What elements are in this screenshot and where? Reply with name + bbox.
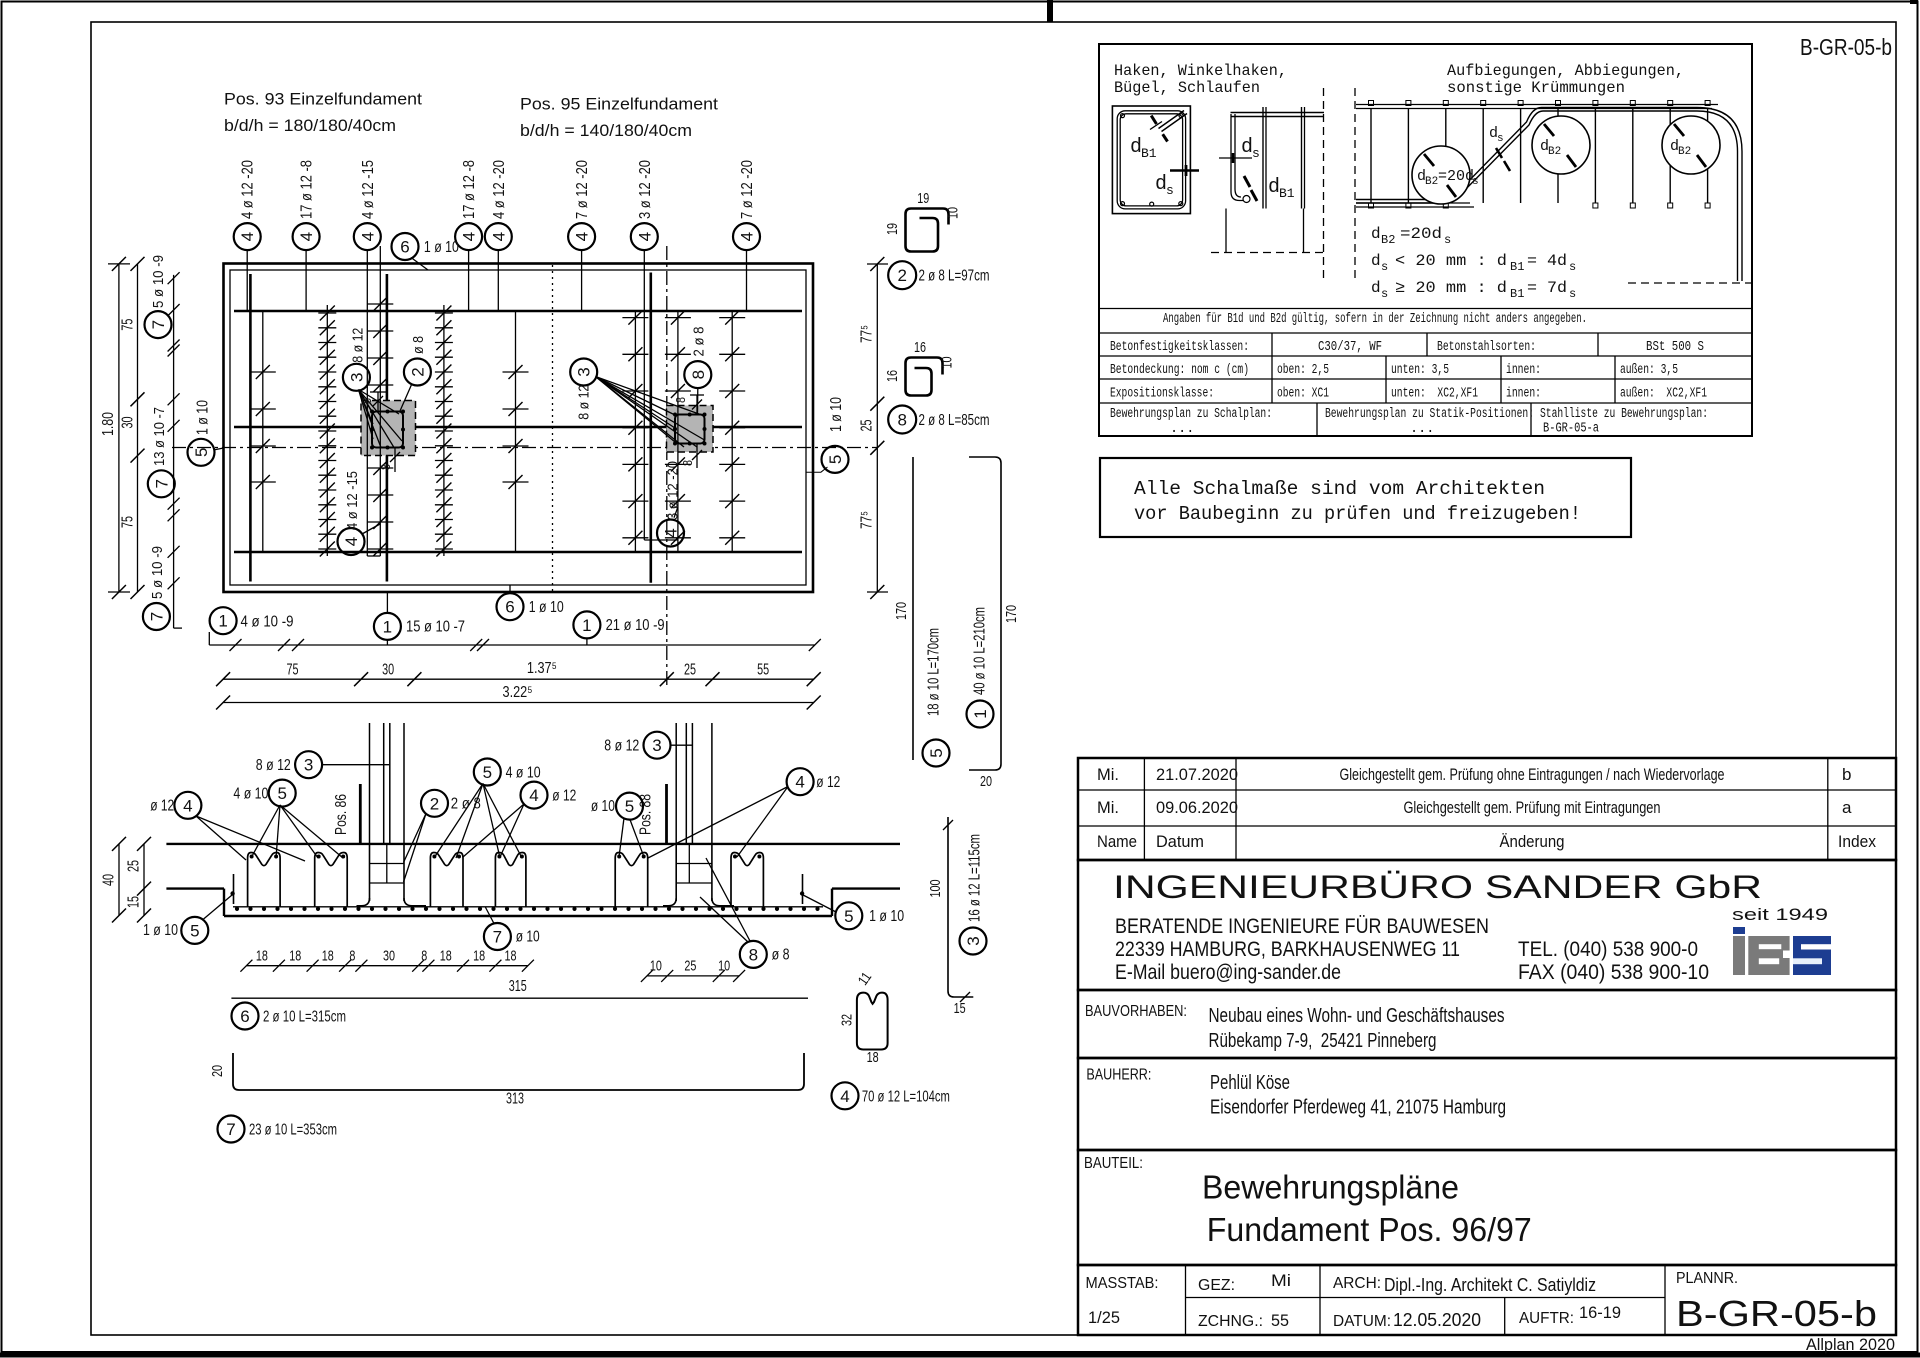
svg-text:40 ø 10 L=210cm: 40 ø 10 L=210cm xyxy=(972,607,989,695)
svg-text:Gleichgestellt gem. Prüfung oh: Gleichgestellt gem. Prüfung ohne Eintrag… xyxy=(1340,765,1725,784)
svg-text:23 ø 10 L=353cm: 23 ø 10 L=353cm xyxy=(249,1122,337,1139)
svg-text:Name: Name xyxy=(1097,832,1137,851)
svg-text:ø 12: ø 12 xyxy=(552,788,576,805)
svg-text:...: ... xyxy=(1410,422,1434,437)
svg-text:s: s xyxy=(1381,260,1388,274)
svg-text:seit 1949: seit 1949 xyxy=(1732,905,1828,924)
svg-text:4: 4 xyxy=(183,796,192,815)
svg-text:d: d xyxy=(1371,279,1381,297)
svg-text:B-GR-05-b: B-GR-05-b xyxy=(1800,34,1892,60)
svg-text:55: 55 xyxy=(1271,1311,1289,1330)
svg-text:unten: XC2,XF1: unten: XC2,XF1 xyxy=(1391,387,1478,402)
svg-text:4 ø 10: 4 ø 10 xyxy=(233,786,268,803)
svg-text:8 ø 12: 8 ø 12 xyxy=(576,385,593,420)
svg-text:8: 8 xyxy=(897,411,906,430)
svg-text:Index: Index xyxy=(1838,832,1876,851)
svg-text:4 ø 12 -15: 4 ø 12 -15 xyxy=(360,160,377,219)
svg-text:DATUM:: DATUM: xyxy=(1333,1313,1391,1330)
svg-text:170: 170 xyxy=(1003,605,1020,623)
svg-text:ARCH:: ARCH: xyxy=(1333,1275,1381,1292)
svg-text:4 ø 10 -9: 4 ø 10 -9 xyxy=(241,614,294,631)
svg-text:7 ø 12 -20: 7 ø 12 -20 xyxy=(739,160,756,219)
svg-text:40: 40 xyxy=(101,874,118,886)
svg-text:10: 10 xyxy=(718,958,730,975)
svg-text:Mi: Mi xyxy=(1271,1271,1291,1290)
svg-text:Änderung: Änderung xyxy=(1500,832,1565,851)
svg-text:≥ 20 mm : d: ≥ 20 mm : d xyxy=(1395,279,1507,297)
svg-text:5: 5 xyxy=(826,455,845,464)
svg-text:Gleichgestellt gem. Prüfung mi: Gleichgestellt gem. Prüfung mit Eintragu… xyxy=(1404,798,1661,817)
svg-text:1.80: 1.80 xyxy=(100,412,117,436)
svg-text:5: 5 xyxy=(192,448,211,457)
svg-text:1: 1 xyxy=(971,709,990,718)
svg-text:16: 16 xyxy=(914,339,926,356)
svg-text:BSt 500 S: BSt 500 S xyxy=(1646,340,1704,355)
svg-text:3 ø 12 -20: 3 ø 12 -20 xyxy=(637,160,654,219)
svg-text:1: 1 xyxy=(383,617,392,636)
svg-text:10: 10 xyxy=(650,958,662,975)
svg-text:Bügel, Schlaufen: Bügel, Schlaufen xyxy=(1114,79,1260,97)
svg-text:4: 4 xyxy=(342,537,361,546)
svg-text:315: 315 xyxy=(509,978,527,995)
svg-text:2 ø 8: 2 ø 8 xyxy=(451,796,481,813)
svg-text:3: 3 xyxy=(575,367,594,376)
svg-text:2: 2 xyxy=(408,367,427,376)
svg-text:B1: B1 xyxy=(1141,146,1157,161)
svg-text:5 ø 10 -9: 5 ø 10 -9 xyxy=(149,546,166,599)
svg-text:4 ø 12 -20: 4 ø 12 -20 xyxy=(491,160,508,219)
svg-text:5: 5 xyxy=(927,748,946,757)
svg-text:32: 32 xyxy=(839,1014,856,1026)
svg-text:s: s xyxy=(1569,260,1576,274)
svg-text:Haken, Winkelhaken,: Haken, Winkelhaken, xyxy=(1114,62,1287,80)
svg-text:8: 8 xyxy=(349,948,355,965)
svg-text:vor Baubeginn zu prüfen und fr: vor Baubeginn zu prüfen und freizugeben! xyxy=(1134,503,1581,525)
svg-text:B2: B2 xyxy=(1425,176,1438,188)
svg-text:25: 25 xyxy=(684,661,696,678)
svg-text:6: 6 xyxy=(400,238,409,257)
svg-text:19: 19 xyxy=(917,190,929,207)
svg-text:= 4d: = 4d xyxy=(1527,252,1567,270)
svg-text:ø 12: ø 12 xyxy=(816,774,840,791)
svg-text:8: 8 xyxy=(673,397,688,403)
svg-text:4: 4 xyxy=(635,232,654,241)
svg-text:8 ø 12: 8 ø 12 xyxy=(349,328,366,363)
svg-text:75: 75 xyxy=(120,516,137,528)
svg-text:70 ø 12 L=104cm: 70 ø 12 L=104cm xyxy=(862,1088,950,1105)
svg-text:18: 18 xyxy=(473,948,485,965)
svg-text:5: 5 xyxy=(844,907,853,926)
svg-text:1 ø 10: 1 ø 10 xyxy=(195,400,212,435)
svg-text:Neubau eines Wohn- und Geschäf: Neubau eines Wohn- und Geschäftshauses xyxy=(1209,1005,1505,1027)
svg-text:16 ø 12 L=115cm: 16 ø 12 L=115cm xyxy=(967,834,984,922)
svg-text:1 ø 10: 1 ø 10 xyxy=(828,397,845,432)
svg-text:Datum: Datum xyxy=(1156,832,1204,851)
svg-text:s: s xyxy=(1381,287,1388,301)
svg-text:77⁵: 77⁵ xyxy=(859,511,876,529)
svg-text:Pos. 86: Pos. 86 xyxy=(333,794,350,835)
svg-text:B-GR-05-a: B-GR-05-a xyxy=(1543,422,1599,437)
svg-text:=20d: =20d xyxy=(1400,225,1442,243)
svg-text:1: 1 xyxy=(582,616,591,635)
svg-text:1 ø 10: 1 ø 10 xyxy=(424,239,459,256)
svg-text:5: 5 xyxy=(190,921,199,940)
svg-text:1 ø 10: 1 ø 10 xyxy=(869,908,904,925)
svg-text:d: d xyxy=(1371,225,1381,243)
svg-text:b: b xyxy=(1842,765,1851,784)
svg-text:oben: XC1: oben: XC1 xyxy=(1277,387,1329,402)
svg-text:ø 12: ø 12 xyxy=(150,798,174,815)
svg-text:3: 3 xyxy=(304,756,313,775)
svg-text:sonstige Krümmungen: sonstige Krümmungen xyxy=(1447,79,1625,97)
svg-text:3: 3 xyxy=(347,373,366,382)
svg-text:4: 4 xyxy=(573,232,592,241)
svg-text:ø 10: ø 10 xyxy=(516,929,540,946)
svg-text:7: 7 xyxy=(152,479,171,488)
svg-text:Allplan 2020: Allplan 2020 xyxy=(1806,1335,1895,1354)
svg-text:BAUVORHABEN:: BAUVORHABEN: xyxy=(1085,1003,1187,1020)
svg-text:20: 20 xyxy=(980,773,992,790)
svg-text:Betondeckung: nom c (cm): Betondeckung: nom c (cm) xyxy=(1110,363,1249,378)
svg-text:2 ø 8 L=85cm: 2 ø 8 L=85cm xyxy=(919,412,990,429)
svg-text:4: 4 xyxy=(460,232,479,241)
svg-text:4 ø 12 -20: 4 ø 12 -20 xyxy=(240,160,257,219)
svg-text:Mi.: Mi. xyxy=(1097,765,1119,784)
svg-text:25: 25 xyxy=(859,419,876,431)
svg-text:18: 18 xyxy=(505,948,517,965)
svg-text:Bewehrungsplan zu Statik-Posit: Bewehrungsplan zu Statik-Positionen: xyxy=(1325,407,1534,422)
svg-text:16: 16 xyxy=(884,370,901,382)
svg-text:PLANNR.: PLANNR. xyxy=(1676,1270,1738,1287)
svg-text:16-19: 16-19 xyxy=(1579,1303,1621,1322)
svg-text:1 ø 10: 1 ø 10 xyxy=(143,922,178,939)
svg-text:oben: 2,5: oben: 2,5 xyxy=(1277,363,1329,378)
svg-text:15: 15 xyxy=(126,896,143,908)
svg-text:4: 4 xyxy=(840,1087,849,1106)
svg-text:4: 4 xyxy=(358,232,377,241)
svg-text:4: 4 xyxy=(489,232,508,241)
svg-text:4 ø 12 -15: 4 ø 12 -15 xyxy=(344,471,361,530)
svg-text:30: 30 xyxy=(383,948,395,965)
svg-text:BAUHERR:: BAUHERR: xyxy=(1086,1067,1151,1084)
svg-text:= 7d: = 7d xyxy=(1527,279,1567,297)
svg-text:17 ø 12 -8: 17 ø 12 -8 xyxy=(461,160,478,219)
svg-text:7: 7 xyxy=(226,1120,235,1139)
svg-text:Dipl.-Ing. Architekt C. Satiyl: Dipl.-Ing. Architekt C. Satiyldiz xyxy=(1384,1275,1596,1295)
svg-text:a: a xyxy=(1842,798,1852,817)
svg-text:Aufbiegungen, Abbiegungen,: Aufbiegungen, Abbiegungen, xyxy=(1447,62,1684,80)
svg-text:innen:: innen: xyxy=(1506,387,1541,402)
svg-text:18: 18 xyxy=(867,1049,879,1066)
svg-text:2: 2 xyxy=(430,794,439,813)
svg-text:170: 170 xyxy=(893,602,910,620)
svg-text:Pos. 95 Einzelfundament: Pos. 95 Einzelfundament xyxy=(520,95,718,114)
svg-text:75: 75 xyxy=(287,661,299,678)
svg-text:4 ø 10: 4 ø 10 xyxy=(506,765,541,782)
svg-text:55: 55 xyxy=(757,661,769,678)
svg-text:innen:: innen: xyxy=(1506,363,1541,378)
svg-text:19: 19 xyxy=(884,223,901,235)
svg-text:d: d xyxy=(1371,252,1381,270)
svg-text:10: 10 xyxy=(939,357,956,369)
svg-text:2 ø 8: 2 ø 8 xyxy=(691,327,708,357)
svg-text:5 ø 10 -9: 5 ø 10 -9 xyxy=(150,255,167,308)
svg-text:ø 8: ø 8 xyxy=(772,947,790,964)
svg-text:22339 HAMBURG, BARKHAUSENWEG 1: 22339 HAMBURG, BARKHAUSENWEG 11 xyxy=(1115,938,1460,961)
svg-text:4: 4 xyxy=(297,232,316,241)
svg-text:15: 15 xyxy=(954,1000,966,1017)
svg-text:TEL. (040) 538 900-0: TEL. (040) 538 900-0 xyxy=(1518,938,1698,961)
svg-text:18: 18 xyxy=(289,948,301,965)
svg-text:=20d: =20d xyxy=(1438,168,1474,185)
svg-text:ø 8: ø 8 xyxy=(410,336,427,354)
svg-text:7: 7 xyxy=(493,928,502,947)
svg-text:8 ø 12: 8 ø 12 xyxy=(604,738,639,755)
svg-text:7: 7 xyxy=(149,320,168,329)
svg-text:12.05.2020: 12.05.2020 xyxy=(1393,1310,1481,1330)
svg-text:MASSTAB:: MASSTAB: xyxy=(1086,1275,1159,1292)
svg-text:6: 6 xyxy=(505,598,514,617)
svg-text:5: 5 xyxy=(277,784,286,803)
svg-text:1/25: 1/25 xyxy=(1088,1308,1120,1327)
svg-text:...: ... xyxy=(1170,422,1194,437)
svg-text:B1: B1 xyxy=(1279,186,1295,201)
svg-text:8: 8 xyxy=(749,945,758,964)
svg-text:3: 3 xyxy=(964,936,983,945)
svg-text:15 ø 10 -7: 15 ø 10 -7 xyxy=(406,619,465,636)
svg-text:B2: B2 xyxy=(1678,146,1691,158)
svg-text:B-GR-05-b: B-GR-05-b xyxy=(1676,1293,1877,1334)
svg-text:Eisendorfer Pferdeweg 41, 2107: Eisendorfer Pferdeweg 41, 21075 Hamburg xyxy=(1210,1097,1506,1119)
svg-text:Alle Schalmaße sind vom Archit: Alle Schalmaße sind vom Architekten xyxy=(1134,478,1545,500)
svg-text:Betonstahlsorten:: Betonstahlsorten: xyxy=(1437,340,1536,355)
svg-text:AUFTR:: AUFTR: xyxy=(1519,1310,1574,1327)
svg-text:GEZ:: GEZ: xyxy=(1198,1277,1235,1294)
svg-text:B2: B2 xyxy=(1548,146,1561,158)
svg-text:FAX (040) 538 900-10: FAX (040) 538 900-10 xyxy=(1518,961,1709,984)
svg-text:Angaben für B1d und B2d gültig: Angaben für B1d und B2d gültig, sofern i… xyxy=(1163,312,1587,327)
svg-text:Pos. 93 Einzelfundament: Pos. 93 Einzelfundament xyxy=(224,90,422,109)
svg-text:2 ø 10 L=315cm: 2 ø 10 L=315cm xyxy=(263,1009,346,1026)
svg-text:s: s xyxy=(1497,133,1504,145)
svg-text:4: 4 xyxy=(738,232,757,241)
svg-text:B2: B2 xyxy=(1381,233,1395,247)
svg-text:21 ø 10 -9: 21 ø 10 -9 xyxy=(606,617,665,634)
svg-text:4: 4 xyxy=(238,232,257,241)
svg-text:b/d/h = 180/180/40cm: b/d/h = 180/180/40cm xyxy=(224,116,396,135)
svg-text:20: 20 xyxy=(209,1065,226,1077)
svg-text:7: 7 xyxy=(147,612,166,621)
svg-text:3.22⁵: 3.22⁵ xyxy=(503,684,533,701)
svg-text:BERATENDE INGENIEURE FÜR BAUWE: BERATENDE INGENIEURE FÜR BAUWESEN xyxy=(1115,915,1489,938)
svg-text:s: s xyxy=(1252,146,1260,161)
svg-text:B1: B1 xyxy=(1510,287,1524,301)
svg-text:INGENIEURBÜRO SANDER GbR: INGENIEURBÜRO SANDER GbR xyxy=(1113,869,1762,905)
svg-text:313: 313 xyxy=(506,1091,524,1108)
svg-text:8: 8 xyxy=(680,460,695,466)
svg-text:21.07.2020: 21.07.2020 xyxy=(1156,765,1238,784)
svg-text:09.06.2020: 09.06.2020 xyxy=(1156,798,1238,817)
svg-text:18: 18 xyxy=(440,948,452,965)
svg-text:8: 8 xyxy=(378,464,393,470)
svg-text:4: 4 xyxy=(529,786,538,805)
svg-text:BAUTEIL:: BAUTEIL: xyxy=(1084,1155,1143,1172)
svg-text:1: 1 xyxy=(218,612,227,631)
svg-text:ø 10: ø 10 xyxy=(591,798,615,815)
svg-text:8 ø 12: 8 ø 12 xyxy=(256,757,291,774)
svg-text:E-Mail buero@ing-sander.de: E-Mail buero@ing-sander.de xyxy=(1115,961,1341,984)
svg-text:8: 8 xyxy=(689,370,708,379)
svg-text:77⁵: 77⁵ xyxy=(859,325,876,343)
svg-text:2 ø 8 L=97cm: 2 ø 8 L=97cm xyxy=(919,268,990,285)
svg-text:Fundament Pos. 96/97: Fundament Pos. 96/97 xyxy=(1207,1211,1532,1248)
svg-text:C30/37, WF: C30/37, WF xyxy=(1318,340,1382,355)
svg-text:10: 10 xyxy=(945,207,962,219)
svg-text:17 ø 12 -8: 17 ø 12 -8 xyxy=(299,160,316,219)
svg-text:s: s xyxy=(1472,176,1479,188)
svg-text:s: s xyxy=(1444,233,1451,247)
svg-text:Mi.: Mi. xyxy=(1097,798,1119,817)
svg-text:2: 2 xyxy=(897,266,906,285)
svg-text:außen: 3,5: außen: 3,5 xyxy=(1620,363,1678,378)
svg-text:1 ø 10: 1 ø 10 xyxy=(529,599,564,616)
svg-text:4: 4 xyxy=(662,528,681,537)
svg-text:100: 100 xyxy=(927,880,944,898)
svg-text:4: 4 xyxy=(795,773,804,792)
svg-text:B1: B1 xyxy=(1510,260,1524,274)
svg-text:8: 8 xyxy=(359,398,374,404)
svg-text:Rübekamp 7-9, 25421 Pinneberg: Rübekamp 7-9, 25421 Pinneberg xyxy=(1209,1030,1437,1052)
svg-text:6: 6 xyxy=(240,1007,249,1026)
svg-text:s: s xyxy=(1569,287,1576,301)
svg-text:Bewehrungspläne: Bewehrungspläne xyxy=(1202,1169,1459,1206)
svg-text:30: 30 xyxy=(382,661,394,678)
svg-text:Expositionsklasse:: Expositionsklasse: xyxy=(1110,387,1214,402)
svg-text:75: 75 xyxy=(120,319,137,331)
svg-text:Bewehrungsplan zu Schalplan:: Bewehrungsplan zu Schalplan: xyxy=(1110,407,1272,422)
svg-text:b/d/h = 140/180/40cm: b/d/h = 140/180/40cm xyxy=(520,121,692,140)
svg-text:5: 5 xyxy=(625,797,634,816)
svg-text:unten: 3,5: unten: 3,5 xyxy=(1391,363,1449,378)
svg-text:30: 30 xyxy=(120,416,137,428)
svg-text:3: 3 xyxy=(652,736,661,755)
svg-text:ZCHNG.:: ZCHNG.: xyxy=(1198,1313,1263,1330)
svg-text:Pehlül Köse: Pehlül Köse xyxy=(1210,1072,1290,1094)
svg-text:25: 25 xyxy=(684,958,696,975)
svg-text:18: 18 xyxy=(256,948,268,965)
svg-text:5: 5 xyxy=(483,763,492,782)
svg-text:außen: XC2,XF1: außen: XC2,XF1 xyxy=(1620,387,1707,402)
svg-text:1.37⁵: 1.37⁵ xyxy=(527,660,557,677)
svg-text:13 ø 10 -7: 13 ø 10 -7 xyxy=(151,407,168,466)
svg-text:3 ø 12 -20: 3 ø 12 -20 xyxy=(665,461,682,520)
svg-text:s: s xyxy=(1166,183,1174,198)
svg-text:Betonfestigkeitsklassen:: Betonfestigkeitsklassen: xyxy=(1110,340,1249,355)
svg-text:< 20 mm : d: < 20 mm : d xyxy=(1395,252,1507,270)
svg-text:18: 18 xyxy=(322,948,334,965)
svg-text:18 ø 10 L=170cm: 18 ø 10 L=170cm xyxy=(926,628,943,716)
svg-text:Stahlliste zu Bewehrungsplan:: Stahlliste zu Bewehrungsplan: xyxy=(1540,407,1708,422)
svg-text:8: 8 xyxy=(421,948,427,965)
svg-text:7 ø 12 -20: 7 ø 12 -20 xyxy=(574,160,591,219)
svg-text:25: 25 xyxy=(126,860,143,872)
